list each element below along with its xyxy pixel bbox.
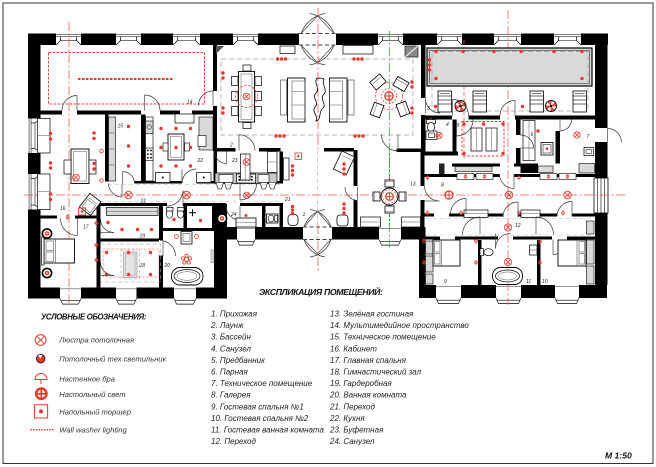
svg-text:7: 7 [587, 134, 590, 140]
svg-text:9. Гостевая спальня №1: 9. Гостевая спальня №1 [211, 402, 304, 411]
svg-text:17: 17 [83, 225, 89, 231]
svg-text:Потолочный тех.светильник: Потолочный тех.светильник [59, 355, 166, 364]
svg-text:15: 15 [118, 124, 124, 130]
svg-text:10: 10 [542, 279, 548, 285]
svg-text:21: 21 [284, 197, 291, 203]
svg-text:22. Кухня: 22. Кухня [329, 414, 365, 423]
svg-text:1: 1 [303, 212, 306, 218]
svg-text:23. Буфетная: 23. Буфетная [329, 426, 384, 435]
svg-text:2: 2 [229, 143, 233, 149]
svg-text:3. Бассейн: 3. Бассейн [211, 333, 251, 342]
svg-text:1. Прихожая: 1. Прихожая [211, 310, 258, 319]
svg-text:ЭКСПЛИКАЦИЯ ПОМЕЩЕНИЙ:: ЭКСПЛИКАЦИЯ ПОМЕЩЕНИЙ: [259, 286, 383, 297]
svg-text:19: 19 [140, 234, 146, 240]
svg-text:Настольный свет: Настольный свет [59, 390, 125, 399]
svg-text:15. Техническое помещение: 15. Техническое помещение [330, 333, 436, 342]
svg-text:18: 18 [140, 263, 146, 269]
svg-text:23: 23 [231, 158, 238, 164]
svg-text:22: 22 [197, 158, 204, 164]
svg-text:2. Лаунж: 2. Лаунж [210, 321, 244, 330]
svg-text:10. Гостевая спальня №2: 10. Гостевая спальня №2 [211, 414, 309, 423]
svg-text:17. Главная спальня: 17. Главная спальня [330, 356, 407, 365]
svg-text:21. Переход: 21. Переход [329, 402, 375, 411]
svg-text:12: 12 [515, 223, 521, 229]
svg-text:4. Санузел: 4. Санузел [211, 344, 251, 353]
svg-text:24. Санузел: 24. Санузел [329, 437, 375, 446]
svg-text:11. Гостевая ванная комната: 11. Гостевая ванная комната [211, 426, 324, 435]
svg-text:13. Зелёная гостиная: 13. Зелёная гостиная [330, 310, 414, 319]
svg-text:16: 16 [60, 206, 66, 212]
svg-text:6. Парная: 6. Парная [211, 368, 248, 377]
svg-text:5: 5 [457, 123, 460, 129]
svg-text:4: 4 [446, 122, 449, 128]
svg-text:19. Гардеробная: 19. Гардеробная [330, 379, 392, 388]
svg-text:Напольный торшер: Напольный торшер [59, 408, 131, 417]
svg-text:Настенное бра: Настенное бра [59, 375, 115, 384]
svg-text:7. Техническое помещение: 7. Техническое помещение [211, 379, 313, 388]
svg-text:14: 14 [187, 100, 193, 106]
svg-text:Wall washer lighting: Wall washer lighting [59, 426, 127, 435]
svg-text:12. Переход: 12. Переход [211, 437, 256, 446]
svg-text:8: 8 [441, 183, 444, 189]
svg-text:УСЛОВНЫЕ ОБОЗНАЧЕНИЯ:: УСЛОВНЫЕ ОБОЗНАЧЕНИЯ: [41, 313, 147, 322]
svg-text:14. Мультимедийное пространств: 14. Мультимедийное пространство [330, 321, 469, 330]
svg-text:21: 21 [140, 199, 147, 205]
svg-text:8. Галерея: 8. Галерея [211, 391, 251, 400]
svg-text:13: 13 [410, 182, 416, 188]
svg-text:16. Кабинет: 16. Кабинет [330, 344, 377, 353]
svg-text:18. Гимнастический зал: 18. Гимнастический зал [330, 368, 422, 377]
svg-text:Люстра потолочная: Люстра потолочная [58, 336, 134, 345]
svg-text:5. Предбанник: 5. Предбанник [211, 356, 266, 365]
svg-text:М 1:50: М 1:50 [605, 451, 632, 461]
svg-text:11: 11 [526, 279, 531, 285]
svg-text:20. Ванная комната: 20. Ванная комната [329, 391, 407, 400]
svg-text:6: 6 [531, 132, 534, 138]
svg-text:9: 9 [444, 279, 447, 285]
svg-text:20: 20 [164, 263, 171, 269]
svg-text:24: 24 [230, 212, 237, 218]
